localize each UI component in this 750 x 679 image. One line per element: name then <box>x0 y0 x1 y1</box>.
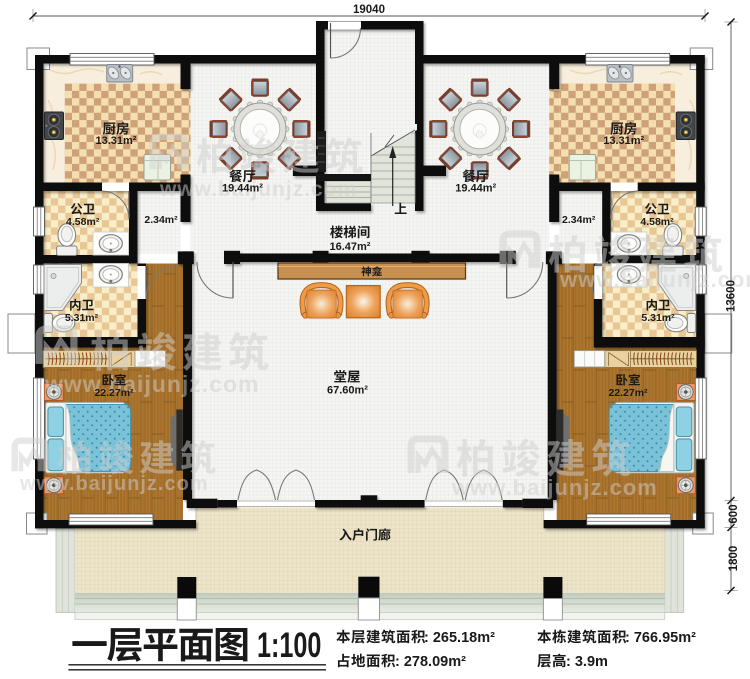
svg-text:5.31m²: 5.31m² <box>65 312 99 324</box>
svg-text:22.27m²: 22.27m² <box>94 387 134 399</box>
svg-text:1:100: 1:100 <box>257 626 321 665</box>
svg-text:67.60m²: 67.60m² <box>327 385 368 397</box>
svg-text:1800: 1800 <box>728 546 740 572</box>
svg-text:600: 600 <box>728 504 740 523</box>
svg-text:: 278.09m²: : 278.09m² <box>395 654 466 670</box>
svg-text:5.31m²: 5.31m² <box>641 312 675 324</box>
svg-text:www.baijunjz.com: www.baijunjz.com <box>44 371 260 397</box>
svg-text:4.58m²: 4.58m² <box>640 216 674 228</box>
svg-text:: 766.95m²: : 766.95m² <box>625 630 696 646</box>
svg-text:19.44m²: 19.44m² <box>455 183 496 195</box>
svg-text:www.baijunjz.com: www.baijunjz.com <box>19 473 209 495</box>
svg-text:13600: 13600 <box>726 280 738 312</box>
svg-text:: 3.9m: : 3.9m <box>566 654 608 670</box>
svg-text:19.44m²: 19.44m² <box>222 183 263 195</box>
svg-text:19040: 19040 <box>353 4 385 16</box>
svg-text:www.baijunjz.com: www.baijunjz.com <box>559 267 750 292</box>
svg-text:2.34m²: 2.34m² <box>562 214 596 226</box>
svg-text:www.baijunjz.com: www.baijunjz.com <box>451 475 658 500</box>
svg-text:4.58m²: 4.58m² <box>66 216 100 228</box>
svg-text:22.27m²: 22.27m² <box>608 387 648 399</box>
svg-text:2.34m²: 2.34m² <box>144 214 178 226</box>
svg-text:16.47m²: 16.47m² <box>330 241 371 253</box>
svg-text:13.31m²: 13.31m² <box>603 135 644 147</box>
svg-text:: 265.18m²: : 265.18m² <box>424 630 495 646</box>
svg-text:13.31m²: 13.31m² <box>96 135 137 147</box>
